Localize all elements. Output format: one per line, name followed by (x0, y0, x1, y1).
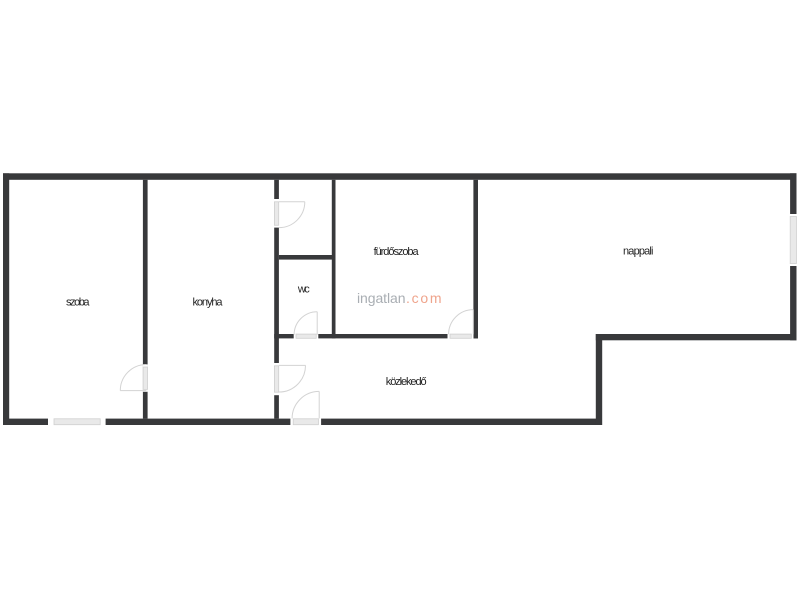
svg-text:konyha: konyha (193, 297, 224, 309)
svg-text:wc: wc (297, 284, 310, 296)
svg-text:közlekedő: közlekedő (386, 376, 427, 388)
svg-text:szoba: szoba (66, 297, 90, 309)
svg-text:ingatlan: ingatlan (357, 290, 406, 306)
svg-text:fürdőszoba: fürdőszoba (374, 246, 420, 258)
svg-text:nappali: nappali (623, 246, 654, 258)
svg-text:.com: .com (406, 290, 442, 306)
